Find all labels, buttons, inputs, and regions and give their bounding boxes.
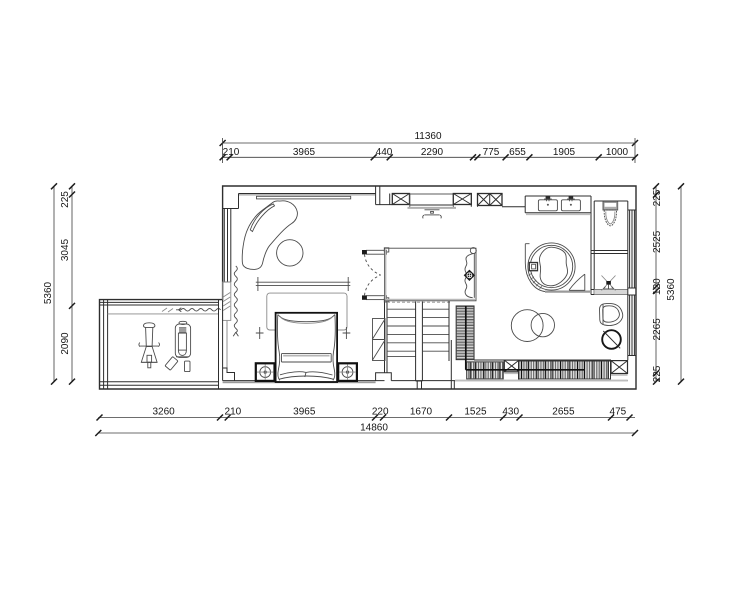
svg-text:11360: 11360 — [414, 131, 442, 142]
svg-text:775: 775 — [483, 147, 500, 158]
svg-text:3045: 3045 — [60, 238, 71, 261]
svg-text:2265: 2265 — [652, 318, 663, 341]
svg-text:5360: 5360 — [666, 278, 677, 301]
svg-text:210: 210 — [223, 147, 240, 158]
svg-text:440: 440 — [376, 147, 393, 158]
svg-text:1000: 1000 — [606, 147, 629, 158]
svg-text:2290: 2290 — [421, 147, 444, 158]
svg-text:655: 655 — [509, 147, 526, 158]
svg-text:1525: 1525 — [464, 407, 487, 418]
svg-text:3965: 3965 — [293, 147, 316, 158]
svg-text:210: 210 — [225, 407, 242, 418]
svg-text:225: 225 — [652, 365, 663, 382]
svg-text:225: 225 — [652, 189, 663, 206]
svg-text:14860: 14860 — [360, 423, 388, 434]
svg-text:1905: 1905 — [553, 147, 576, 158]
svg-text:2090: 2090 — [60, 332, 71, 355]
svg-text:3260: 3260 — [152, 407, 175, 418]
svg-text:3965: 3965 — [293, 407, 316, 418]
svg-text:120: 120 — [652, 278, 663, 295]
svg-text:5360: 5360 — [43, 281, 54, 304]
svg-text:1670: 1670 — [410, 407, 433, 418]
svg-text:225: 225 — [60, 191, 71, 208]
svg-text:475: 475 — [610, 407, 627, 418]
svg-text:2655: 2655 — [552, 407, 575, 418]
svg-text:2525: 2525 — [652, 230, 663, 253]
svg-text:430: 430 — [502, 407, 519, 418]
svg-text:220: 220 — [372, 407, 389, 418]
